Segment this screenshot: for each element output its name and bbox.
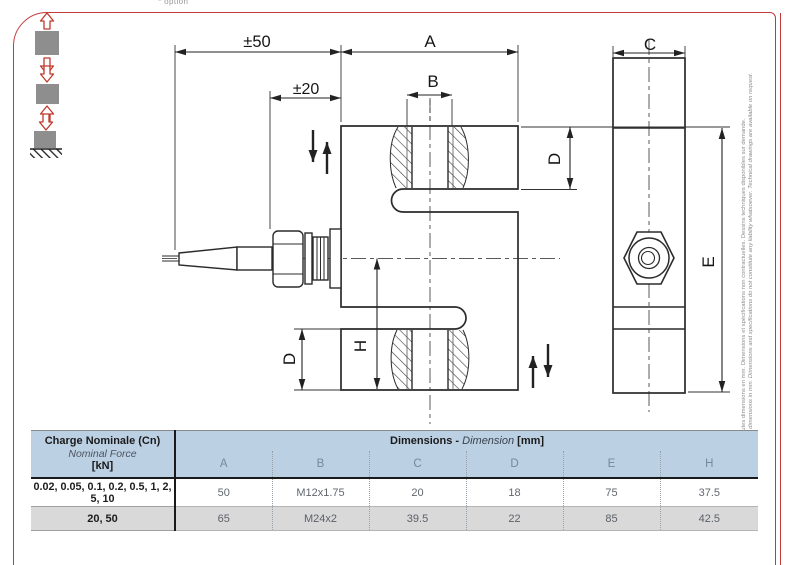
nominal-force-header: Charge Nominale (Cn) Nominal Force [kN]: [31, 431, 175, 479]
value-c: 20: [369, 478, 466, 507]
value-e: 85: [563, 507, 660, 531]
dim-label-pm50: ±50: [243, 33, 270, 51]
load-cell-block: [35, 31, 59, 55]
header-kn-unit: [kN]: [31, 460, 174, 473]
dim-label-d-top: D: [545, 153, 564, 165]
value-b: M24x2: [272, 507, 369, 531]
force-range-cell: 20, 50: [31, 507, 175, 531]
dim-label-h: H: [351, 340, 370, 352]
dim-label-a: A: [424, 32, 436, 51]
value-h: 37.5: [660, 478, 758, 507]
cable-gland: [162, 229, 341, 288]
dimensions-header: Dimensions - Dimension [mm]: [175, 431, 758, 452]
value-a: 65: [175, 507, 272, 531]
dimensions-table: Charge Nominale (Cn) Nominal Force [kN] …: [31, 430, 758, 531]
dimensions-header-en: Dimension: [462, 435, 514, 447]
value-h: 42.5: [660, 507, 758, 531]
column-header-a: A: [175, 451, 272, 478]
strain-relief-taper: [179, 247, 237, 270]
value-c: 39.5: [369, 507, 466, 531]
dim-label-d-bottom: D: [280, 353, 299, 365]
column-header-c: C: [369, 451, 466, 478]
header-nominal-force: Nominal Force: [31, 448, 174, 460]
tension-both-directions-icon: [35, 13, 59, 74]
gland-washer: [305, 233, 312, 284]
dimension-labels: ±50 A ±20 B C D D H E: [243, 32, 718, 365]
compression-on-base-icon: [30, 114, 62, 158]
load-cell-block: [34, 131, 56, 148]
load-cell-block: [36, 84, 59, 104]
table-row: 20, 50 65 M24x2 39.5 22 85 42.5: [31, 507, 758, 531]
dim-label-e: E: [699, 256, 718, 267]
value-d: 18: [466, 478, 563, 507]
ground-hatch: [30, 149, 62, 158]
gland-barrel: [237, 247, 272, 270]
table-row: 0.02, 0.05, 0.1, 0.2, 0.5, 1, 2, 5, 10 5…: [31, 478, 758, 507]
gland-nut: [273, 231, 303, 287]
value-e: 75: [563, 478, 660, 507]
column-header-e: E: [563, 451, 660, 478]
column-header-d: D: [466, 451, 563, 478]
up-arrow-icon: [41, 13, 54, 29]
column-header-h: H: [660, 451, 758, 478]
value-d: 22: [466, 507, 563, 531]
dim-label-c: C: [644, 35, 656, 54]
value-b: M12x1.75: [272, 478, 369, 507]
dimensions-header-unit: [mm]: [514, 435, 544, 447]
dim-label-pm20: ±20: [293, 81, 320, 98]
dimensions-header-fr: Dimensions -: [390, 435, 462, 447]
column-header-b: B: [272, 451, 369, 478]
technical-drawing: ±50 A ±20 B C D D H E: [0, 0, 789, 430]
gland-flange: [330, 229, 341, 288]
datasheet-page: * option Toutes dimensions en mm. Dimens…: [0, 0, 789, 565]
value-a: 50: [175, 478, 272, 507]
dim-label-b: B: [427, 72, 438, 91]
force-range-cell: 0.02, 0.05, 0.1, 0.2, 0.5, 1, 2, 5, 10: [31, 478, 175, 507]
gland-hex-nut-front: [624, 232, 674, 284]
load-direction-icons: [30, 13, 62, 158]
header-charge-nominale: Charge Nominale (Cn): [31, 435, 174, 448]
